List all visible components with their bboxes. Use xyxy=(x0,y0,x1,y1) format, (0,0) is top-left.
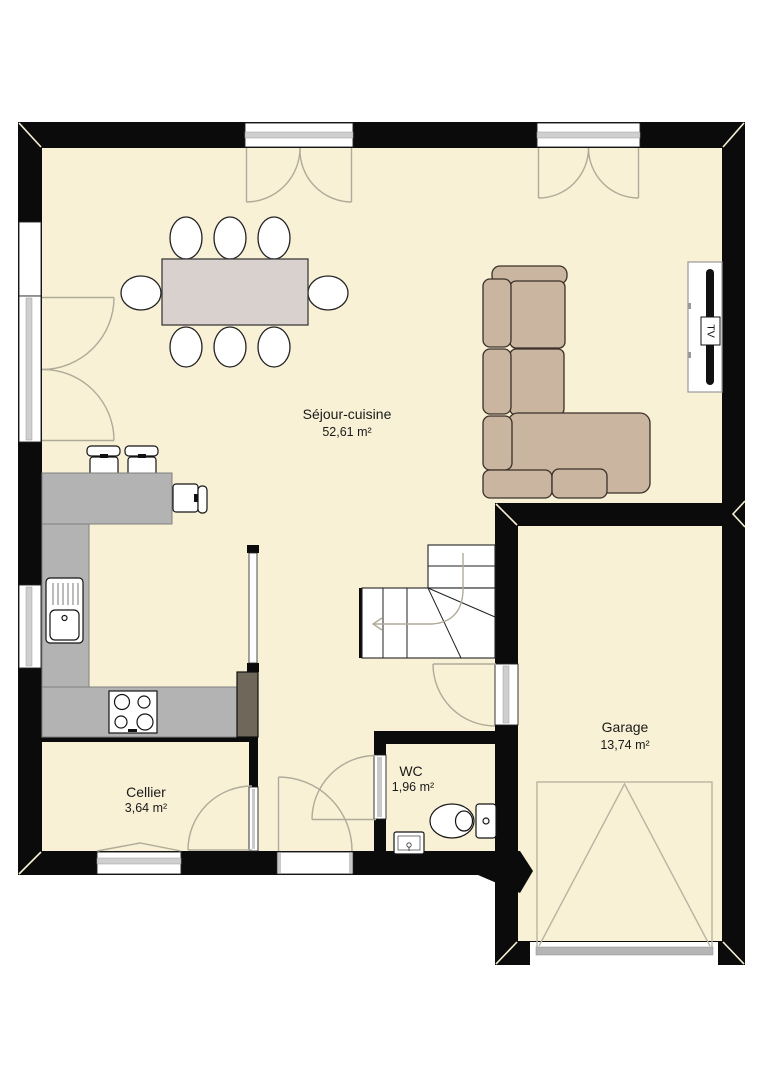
cooktop xyxy=(109,691,157,733)
floor-plan-page: TV Séjour-cuisine 52,61 m² Garage 13,74 … xyxy=(0,0,763,1080)
floor-plan-canvas: TV Séjour-cuisine 52,61 m² Garage 13,74 … xyxy=(0,0,763,1080)
bar-stool-1 xyxy=(87,446,120,477)
room-area-sejour: 52,61 m² xyxy=(322,425,371,439)
sofa-front-cushion xyxy=(483,470,552,498)
tv-unit: TV xyxy=(688,262,722,392)
sofa-front-cushion xyxy=(552,469,607,498)
wc-sink-icon xyxy=(394,832,424,854)
dining-table xyxy=(162,259,308,325)
sofa-back-cushion xyxy=(483,279,511,347)
bar-stool-3 xyxy=(173,484,207,513)
wall-wc-top xyxy=(374,731,498,744)
sofa-back-cushion xyxy=(483,416,512,470)
partition-cap-top xyxy=(247,545,259,553)
wall-bottom-main xyxy=(18,851,495,875)
room-area-garage: 13,74 m² xyxy=(600,738,649,752)
wall-wc-left-lower xyxy=(374,819,386,851)
sofa-seat xyxy=(510,281,565,348)
tall-cabinet xyxy=(237,672,258,737)
stair-lower-flight xyxy=(362,588,495,658)
tv-label: TV xyxy=(705,324,717,337)
dining-chair xyxy=(258,217,290,259)
room-label-cellier: Cellier xyxy=(126,784,166,800)
room-area-cellier: 3,64 m² xyxy=(125,801,167,815)
room-area-wc: 1,96 m² xyxy=(392,780,434,794)
wall-right xyxy=(722,122,745,965)
bar-stool-2 xyxy=(125,446,158,477)
wall-garage-left xyxy=(495,503,518,965)
dining-chair xyxy=(258,327,290,367)
sofa-seat xyxy=(510,349,564,415)
dining-chair xyxy=(121,276,161,310)
window-left-upper xyxy=(19,222,41,296)
kitchen-counter-top xyxy=(42,473,172,524)
wall-garage-top xyxy=(495,503,745,526)
glass-partition xyxy=(249,553,257,663)
room-label-garage: Garage xyxy=(602,719,649,735)
kitchen-sink xyxy=(46,578,83,643)
toilet-icon xyxy=(430,804,496,838)
dining-chair xyxy=(214,217,246,259)
sofa-back-cushion xyxy=(483,349,511,414)
dining-chair xyxy=(308,276,348,310)
room-label-sejour: Séjour-cuisine xyxy=(303,406,392,422)
partition-cap-bottom xyxy=(247,663,259,672)
dining-chair xyxy=(170,327,202,367)
wall-wc-left-upper xyxy=(374,744,386,755)
dining-chair xyxy=(214,327,246,367)
wall-cellier-right xyxy=(249,742,258,787)
dining-chair xyxy=(170,217,202,259)
window-left-kitchen xyxy=(19,585,41,668)
room-label-wc: WC xyxy=(399,763,422,779)
